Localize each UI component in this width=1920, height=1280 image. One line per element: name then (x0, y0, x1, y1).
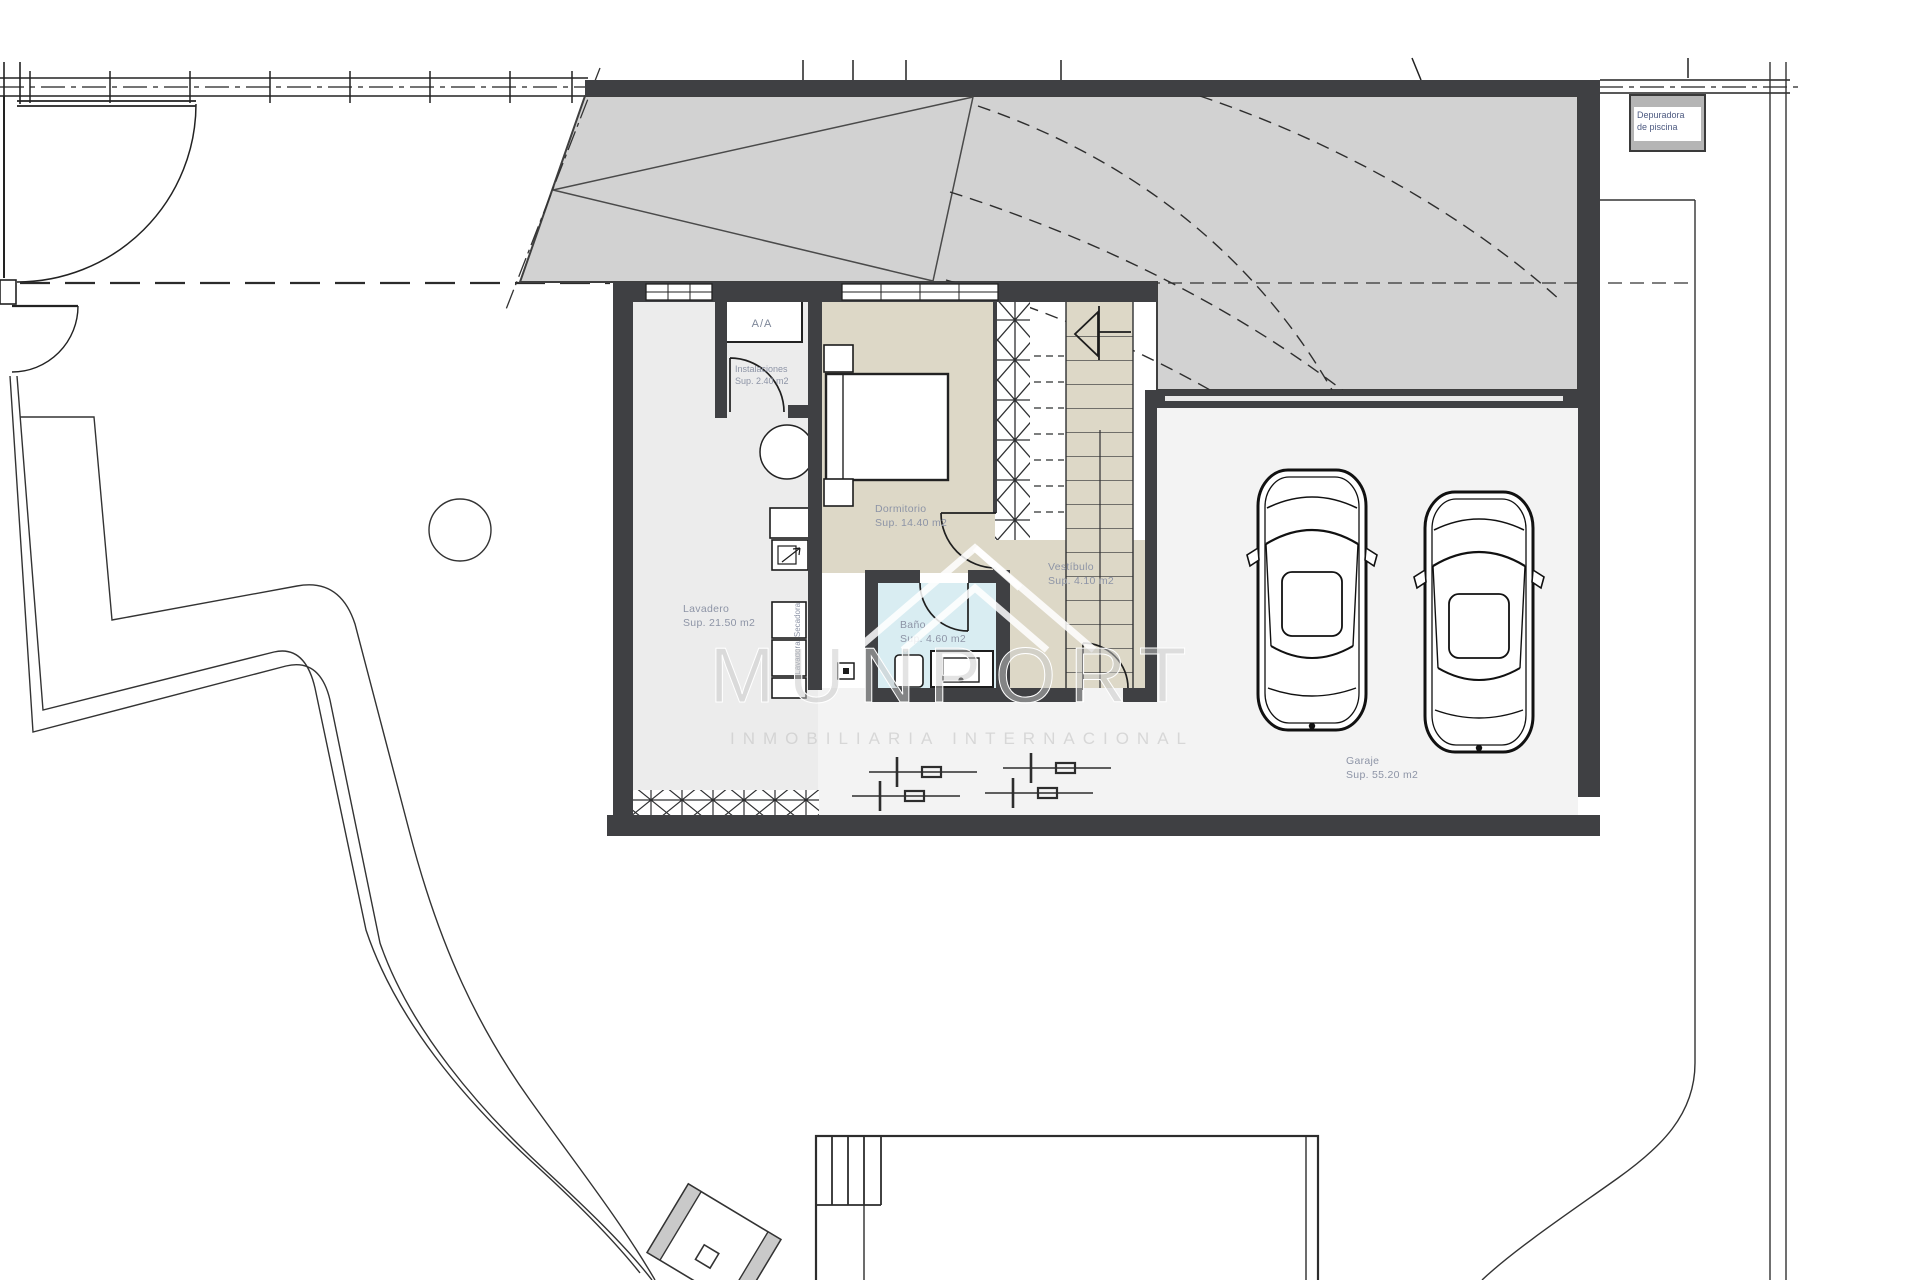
pool-equipment-label-1: Depuradora (1637, 110, 1685, 120)
garden-steps (647, 1184, 781, 1280)
floor-plan-drawing: A/A Secadora Lavadora (0, 0, 1920, 1280)
garden-terrain-lines (10, 376, 655, 1280)
laundry-table-icon (760, 425, 814, 479)
stair-shaft-hatch (995, 302, 1030, 540)
room-label-garaje: Garaje (1346, 755, 1379, 767)
room-area-vestibulo: Sup. 4.10 m2 (1048, 575, 1114, 587)
watermark-brand: MUNPORT (710, 631, 1201, 719)
swimming-pool (816, 1136, 1318, 1280)
room-label-lavadero: Lavadero (683, 603, 729, 615)
room-area-instalaciones: Sup. 2.40 m2 (735, 376, 789, 386)
room-label-instalaciones: Instalaciones (735, 364, 788, 374)
car-icon (1414, 492, 1544, 752)
window-icon (646, 284, 712, 300)
entrance-gate-icon (0, 96, 196, 372)
car-icon (1247, 470, 1377, 730)
room-area-dormitorio: Sup. 14.40 m2 (875, 517, 947, 529)
window-icon (842, 284, 998, 300)
room-area-lavadero: Sup. 21.50 m2 (683, 617, 755, 629)
vent-grate (633, 790, 819, 815)
ac-unit-label: A/A (752, 318, 773, 330)
floor-plan-page: A/A Secadora Lavadora (0, 0, 1920, 1280)
room-label-vestibulo: Vestíbulo (1048, 561, 1094, 573)
pool-equipment-box: Depuradora de piscina (1630, 95, 1705, 151)
pool-equipment-label-2: de piscina (1637, 122, 1678, 132)
stair-hidden-treads (1034, 356, 1064, 512)
room-area-garaje: Sup. 55.20 m2 (1346, 769, 1418, 781)
ac-unit: A/A (722, 300, 802, 342)
room-label-dormitorio: Dormitorio (875, 503, 926, 515)
watermark-tagline: INMOBILIARIA INTERNACIONAL (730, 729, 1194, 748)
